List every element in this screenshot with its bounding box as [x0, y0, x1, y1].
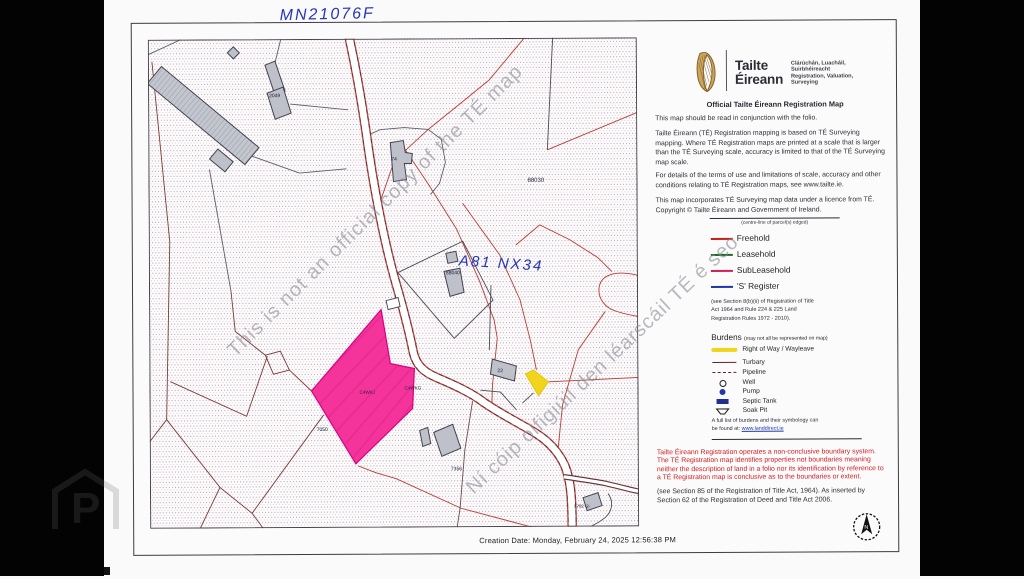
svg-text:5782 -2-: 5782 -2- — [574, 504, 591, 509]
svg-text:88030: 88030 — [527, 178, 544, 184]
svg-text:7356: 7356 — [451, 466, 462, 472]
svg-text:2049: 2049 — [269, 93, 280, 99]
svg-text:N: N — [864, 525, 868, 531]
svg-text:C4WKG: C4WKG — [404, 385, 421, 390]
svg-text:22: 22 — [497, 368, 503, 374]
svg-text:74: 74 — [391, 157, 397, 163]
svg-text:88040: 88040 — [446, 270, 460, 276]
svg-text:7050: 7050 — [317, 427, 328, 433]
svg-text:C4WKJ: C4WKJ — [360, 390, 376, 395]
